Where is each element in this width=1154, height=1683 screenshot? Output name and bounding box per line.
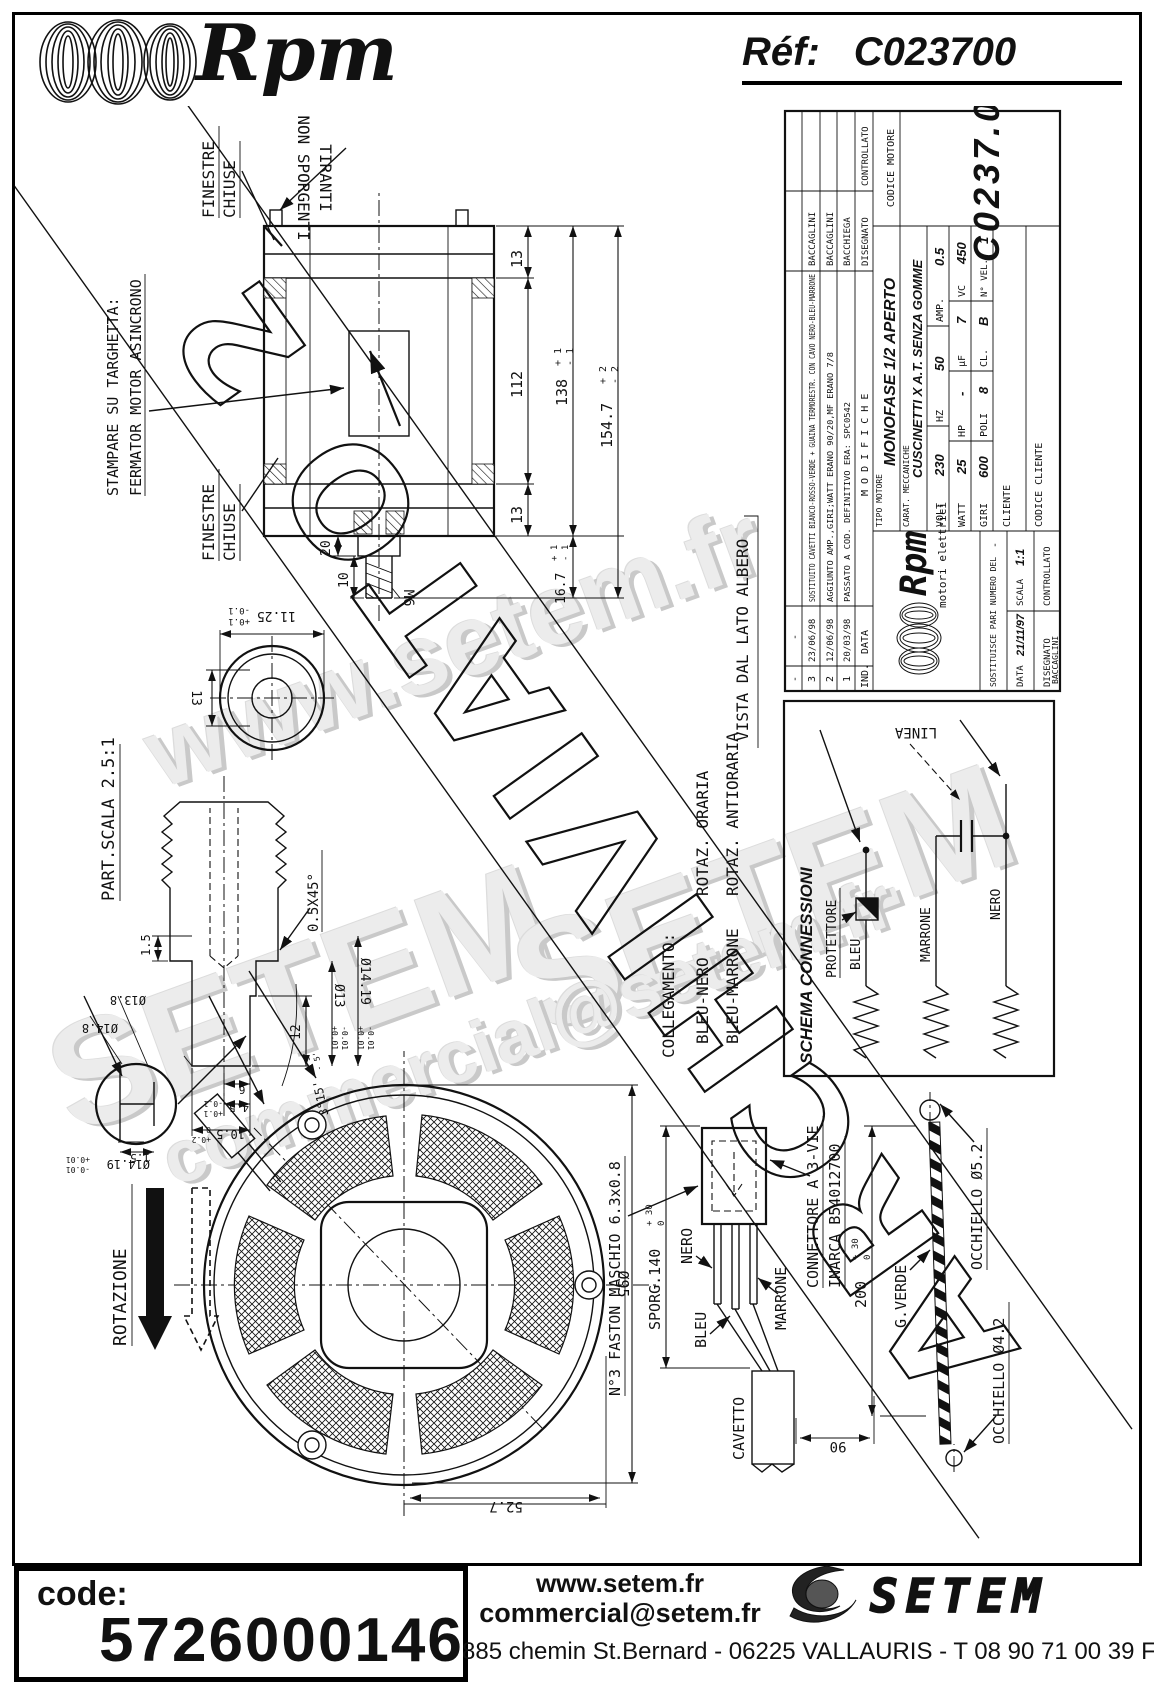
marrone-label: MARRONE [772, 1267, 790, 1330]
dim-6: 6 [239, 1083, 246, 1096]
revh-mod: M O D I F I C H E [860, 394, 871, 496]
spec-hz-v: 50 [932, 356, 947, 371]
dim-15-step: 1.5 [139, 934, 153, 956]
footer-website: www.setem.fr [470, 1568, 770, 1599]
codice-motore-label: CODICE MOTORE [886, 129, 897, 207]
dim-dia1419-b: Ø14.19 [107, 1157, 150, 1171]
bleu-label: BLEU [692, 1312, 710, 1348]
spec-hp-l: HP [957, 425, 968, 437]
spec-nvel-l: N° VEL. [980, 259, 990, 297]
finestre-chiuse-right-1: FINESTRE [199, 141, 218, 218]
brand-title: Rpm [196, 8, 398, 99]
vista-label: VISTA DAL LATO ALBERO [733, 539, 752, 741]
rev2-name: BACCAGLINI [826, 212, 836, 266]
nero-label: NERO [678, 1228, 696, 1264]
dim-dia138: Ø13.8 [110, 993, 146, 1007]
rev0-ind: - [790, 676, 801, 682]
rotazione-label: ROTAZIONE [110, 1248, 131, 1346]
data-val: 21/11/97 [1015, 613, 1027, 657]
dim-138-tol-p: + 1 [553, 348, 564, 366]
dim-dia13-tol-p: +0.01 [330, 1026, 339, 1050]
code-value: 5726000146 [99, 1605, 464, 1676]
shaft-end-view: 13 11.25 +0.1 -0.1 [188, 605, 334, 760]
spec-amp-l: AMP. [935, 298, 946, 322]
dim-dia1419: Ø14.19 [357, 958, 372, 1005]
rev2-mod: AGGIUNTO AMP.,GIRI;WATT ERANO 90/20,MF E… [826, 352, 835, 602]
spec-uf-v: 7 [954, 316, 969, 324]
rev0-date: - [790, 634, 801, 640]
sporg-tol-p: + 30 [645, 1204, 655, 1226]
tipo-label: TIPO MOTORE [875, 474, 884, 527]
disegnato-val: BACCAGLINI [1051, 636, 1060, 684]
schema-marrone-label: MARRONE [919, 907, 934, 962]
faston-label: N°3 FASTON MASCHIO 6.3x0.8 [606, 1161, 624, 1396]
part-scala-label: PART.SCALA 2.5:1 [99, 737, 119, 901]
rev3-ind: 1 [842, 676, 853, 682]
spec-volt-l: VOLT [935, 503, 946, 527]
spec-poli-v: 8 [976, 386, 991, 394]
spec-hz-l: HZ [935, 410, 946, 422]
spec-giri-l: GIRI [979, 503, 990, 527]
rev1-date: 23/06/98 [808, 619, 818, 662]
dim-112: 112 [508, 371, 526, 398]
codice-cliente-label: CODICE CLIENTE [1034, 443, 1045, 527]
dim-1125-tol-m: -0.1 [228, 605, 250, 615]
setem-logo-text: SETEM [870, 1569, 1048, 1623]
dim-90: 90 [830, 1438, 847, 1454]
dim-dia13-tol-m: -0.01 [340, 1026, 349, 1050]
dim-1547-tol-m: - 2 [610, 366, 621, 384]
rotaz-antioraria-label: ROTAZ. ANTIORARIA [723, 732, 742, 896]
dim-45-tol-p: +0.1 [204, 1109, 223, 1118]
dim-1125-tol-p: +0.1 [228, 616, 250, 626]
linea-label: LINEA [894, 724, 937, 740]
footer-email: commercial@setem.fr [448, 1598, 792, 1629]
footer-address: 885 chemin St.Bernard - 06225 VALLAURIS … [462, 1638, 1142, 1666]
schema-bleu-label: BLEU [849, 939, 864, 970]
rev3-name: BACCHIEGA [843, 217, 853, 266]
finestre-chiuse-right-2: CHIUSE [220, 160, 239, 218]
dim-1547-tol-p: + 2 [598, 366, 609, 384]
cliente-label: CLIENTE [1002, 485, 1013, 527]
dim-dia1419-tol-p: +0.01 [356, 1026, 365, 1050]
rev3-date: 20/03/98 [843, 619, 853, 662]
dim-chamfer: 0.5X45° [306, 873, 322, 932]
protettore-label: PROTETTORE [825, 900, 840, 978]
dim-138-tol-m: - 1 [565, 348, 576, 366]
controllato-label: CONTROLLATO [1043, 546, 1053, 606]
dim-13-circle: 13 [188, 690, 203, 706]
dim-dia1419-b-tol-m: -0.01 [66, 1165, 90, 1174]
titleblock-brand: Rpm [894, 531, 935, 596]
revh-ind: IND. [860, 664, 871, 688]
spec-cl-l: CL. [979, 349, 990, 367]
spec-volt-v: 230 [932, 454, 947, 477]
fermator-label: FERMATOR MOTOR ASINCRONO [127, 279, 145, 496]
ref-value: C023700 [854, 30, 1016, 75]
scala-label: SCALA [1016, 578, 1026, 606]
sostituisce-val: - [990, 542, 1001, 548]
spec-cl-v: B [976, 317, 991, 326]
data-label: DATA [1016, 665, 1026, 687]
technical-drawing-area: 112 13 13 138 + 1 - 1 16.7 + 1 - 1 154.7… [14, 106, 1136, 1556]
rev1-ind: 3 [807, 676, 818, 682]
revh-date: DATA [860, 630, 871, 654]
dim-13-top: 13 [508, 250, 526, 268]
finestre-chiuse-left-1: FINESTRE [199, 484, 218, 561]
spec-amp-v: 0.5 [932, 247, 947, 266]
rev1-mod: SOSTITUITO CAVETTI BIANCO-ROSSO-VERDE + … [808, 274, 817, 602]
scala-val: 1:1 [1013, 548, 1027, 566]
setem-logo: SETEM [782, 1556, 1082, 1640]
revh-name: DISEGNATO [861, 217, 871, 266]
schema-nero-label: NERO [989, 889, 1004, 920]
spec-hp-v: - [954, 392, 969, 396]
rev3-mod: PASSATO A COD. DEFINITIVO ERA: SPC0542 [843, 402, 852, 602]
spec-poli-l: POLI [979, 413, 990, 437]
rpm-coils-icon [30, 16, 200, 108]
dim-dia1419-b-tol-p: +0.01 [66, 1155, 90, 1164]
dim-167-tol-p: + 1 [550, 545, 560, 561]
reference-block: Réf: C023700 [742, 30, 1122, 85]
tipo-val: MONOFASE 1/2 APERTO [882, 277, 899, 466]
setem-swoosh-icon [790, 1566, 856, 1622]
rev1-name: BACCAGLINI [808, 212, 818, 266]
tiranti-label: TIRANTI [316, 144, 335, 211]
titleblock-rpm-logo: Rpm motori elettrici [894, 502, 949, 674]
sporg-label: SPORG.140 [646, 1249, 664, 1330]
dim-527: 52.7 [489, 1498, 523, 1514]
dim-1547: 154.7 [598, 403, 616, 448]
spec-vc-l: VC [957, 285, 968, 297]
dim-167: 16.7 [554, 573, 569, 604]
dim-167-tol-m: - 1 [561, 545, 571, 561]
dim-dia1419-tol-m: -0.01 [366, 1026, 375, 1050]
dim-dia13: Ø13 [331, 984, 346, 1007]
spec-watt-v: 25 [954, 459, 969, 475]
title-block: - - 3 23/06/98 SOSTITUITO CAVETTI BIANCO… [785, 106, 1060, 691]
spec-uf-l: µF [957, 355, 968, 367]
non-sporgenti-label: NON SPORGENTI [294, 115, 313, 240]
stampare-label: STAMPARE SU TARGHETTA: [104, 297, 122, 496]
sporg-tol-z: 0 [657, 1221, 667, 1226]
rev2-ind: 2 [825, 676, 836, 682]
dim-13-bottom: 13 [508, 506, 526, 524]
dim-138: 138 [553, 379, 571, 406]
carat-val: CUSCINETTI X A.T. SENZA GOMME [910, 259, 925, 478]
code-box: code: 5726000146 [14, 1566, 468, 1682]
dim-1125: 11.25 [257, 608, 296, 623]
finestre-chiuse-left-2: CHIUSE [220, 503, 239, 561]
keyway-detail-circle: 1.5 Ø14.8 Ø13.8 Ø14.19 -0.01 +0.01 [66, 993, 246, 1174]
cavetto-label: CAVETTO [730, 1397, 748, 1460]
rev2-date: 12/06/98 [826, 619, 836, 662]
spec-giri-v: 600 [976, 456, 991, 478]
ref-label: Réf: [742, 30, 820, 75]
spec-watt-l: WATT [957, 503, 968, 527]
drawing-sheet: Rpm Réf: C023700 www.setem.fr SETEM SETE… [0, 0, 1154, 1683]
dim-105-tol-p: +0.2 [192, 1135, 211, 1144]
codice-motore-val: C0237.00 [966, 106, 1007, 262]
sostituisce-label: SOSTITUISCE PARI NUMERO DEL [989, 557, 998, 687]
dim-105: 10.5 [216, 1127, 245, 1141]
revh-name2: CONTROLLATO [861, 126, 871, 186]
